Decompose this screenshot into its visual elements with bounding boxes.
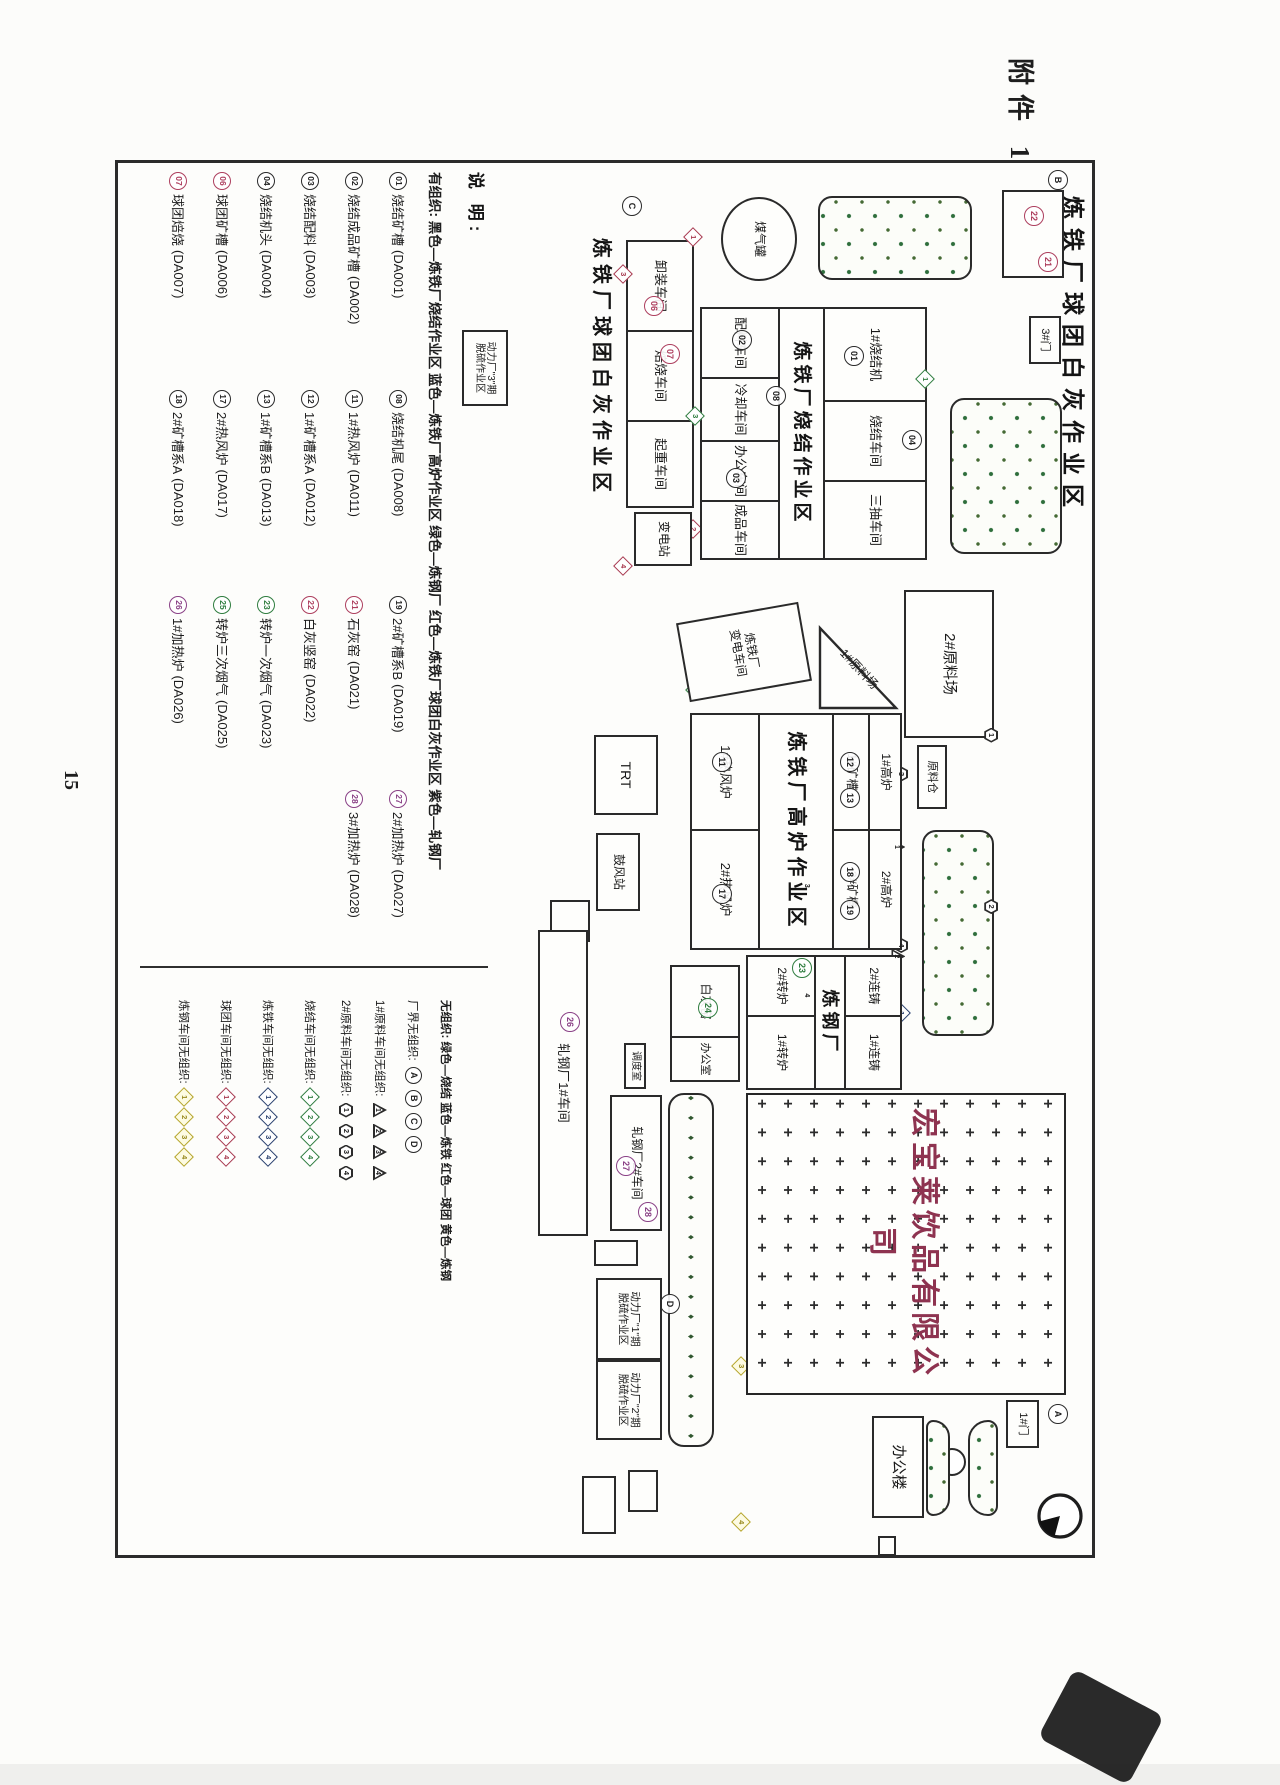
- marker-13-orebin1-B: 13: [840, 788, 860, 808]
- hot-blast-stove-1: 1#热风炉: [690, 713, 760, 831]
- unloading-workshop: 卸装车间: [626, 240, 694, 332]
- roasting-workshop: 焙烧车间: [626, 330, 694, 422]
- page-number: 15: [59, 770, 82, 790]
- attachment-label: 附件 1: [1003, 58, 1042, 168]
- legend-row-rawyard2: 2#原料车间无组织: 1 2 3 4: [338, 1000, 354, 1181]
- legend-item-DA007: 07球团焙烧(DA007): [169, 172, 188, 298]
- compass-icon: [1036, 1492, 1084, 1540]
- marker-01-sinter-bin: 01: [844, 346, 864, 366]
- marker-17-stove2: 17: [712, 884, 732, 904]
- crane-workshop: 起重车间: [626, 420, 694, 508]
- legend-item-DA003: 03烧结配料(DA003): [301, 172, 320, 298]
- power-plant-phase1-box: 动力厂"1"期 脱硫作业区: [596, 1278, 662, 1360]
- small-empty-building: [594, 1240, 638, 1266]
- boundary-point-B: B: [1048, 170, 1068, 190]
- gate-1: 1#门: [1006, 1400, 1039, 1448]
- yard2-fugitive-hexagon: 1: [984, 728, 998, 743]
- converter-1: 1#转炉: [746, 1015, 816, 1090]
- lime-office: 办公室: [670, 1036, 740, 1082]
- legend-item-DA026: 261#加热炉(DA026): [169, 596, 188, 724]
- north-compass: [1036, 1492, 1084, 1540]
- product-workshop: 成品车间: [700, 500, 780, 560]
- raw-material-yard-2: 2#原料场: [904, 590, 994, 738]
- legend-row-boundary: 厂界无组织: A B C D: [405, 1000, 422, 1153]
- legend-item-DA019: 192#矿槽系B(DA019): [389, 596, 408, 733]
- legend-item-DA022: 22白灰竖窑(DA022): [301, 596, 320, 722]
- legend-item-DA018: 182#矿槽系A(DA018): [169, 390, 188, 527]
- tiny-building: [878, 1536, 896, 1556]
- marker-03-sinter-batching: 03: [726, 468, 746, 488]
- legend-item-DA006: 06球团矿槽(DA006): [213, 172, 232, 298]
- legend-item-DA011: 111#热风炉(DA011): [345, 390, 364, 517]
- blower-station: 鼓风站: [596, 833, 640, 911]
- ore-bin-2: 2#矿槽: [832, 829, 870, 950]
- yard2-fugitive-hexagon: 2: [984, 899, 998, 914]
- marker-22-lime-shaft-kiln: 22: [1024, 206, 1044, 226]
- marker-21-lime-kiln: 21: [1038, 252, 1058, 272]
- marker-27-reheat-furnace-2: 27: [616, 1156, 636, 1176]
- legend-organized-header: 有组织: 黑色—炼铁厂烧结作业区 蓝色—炼铁厂高炉作业区 绿色—炼钢厂 红色—炼…: [426, 172, 446, 952]
- cooling-workshop: 冷却车间: [700, 377, 780, 442]
- marker-28-reheat-furnace-3: 28: [638, 1202, 658, 1222]
- trees-area-west: [818, 196, 972, 280]
- legend-title: 说 明:: [465, 172, 490, 236]
- legend-item-DA025: 25转炉三次烟气(DA025): [213, 596, 232, 748]
- marker-06-pellet-bin: 06: [644, 296, 664, 316]
- marker-12-orebin1-A: 12: [840, 752, 860, 772]
- legend-item-DA023: 23转炉一次烟气(DA023): [257, 596, 276, 748]
- beverage-company-parcel: 宏宝莱饮品有限公司: [746, 1093, 1066, 1395]
- small-building-east-2: [582, 1476, 616, 1534]
- marker-18-orebin2-A: 18: [840, 862, 860, 882]
- substation: 变电站: [634, 512, 692, 566]
- legend-divider-line: [140, 966, 488, 968]
- legend-row-rawyard1: 1#原料车间无组织: 1 2 3 4: [372, 1000, 388, 1181]
- legend-item-DA001: 01烧结矿槽(DA001): [389, 172, 408, 298]
- gate-3: 3#门: [1029, 316, 1061, 364]
- legend-item-DA021: 21石灰窑(DA021): [345, 596, 364, 709]
- legend-fugitive-header: 无组织: 绿色—烧结 蓝色—炼铁 红色—球团 黄色—炼钢: [438, 1000, 454, 1250]
- legend-row-pellet: 球团车间无组织: 1 2 3 4: [218, 1000, 234, 1164]
- legend-item-DA002: 02烧结成品矿槽(DA002): [345, 172, 364, 324]
- raw-material-yard-1: 1#原料场: [814, 622, 902, 712]
- area-title-sinter: 炼铁厂烧结作业区: [778, 307, 825, 560]
- legend-item-DA028: 283#加热炉(DA028): [345, 790, 364, 918]
- legend-item-DA013: 131#矿槽系B(DA013): [257, 390, 276, 527]
- scan-corner-artifact: [1038, 1669, 1165, 1785]
- tree-strip: [668, 1093, 714, 1447]
- boundary-point-A: A: [1048, 1404, 1068, 1424]
- gas-tank: 煤气罐: [721, 197, 797, 281]
- marker-07-pellet-roast: 07: [660, 344, 680, 364]
- marker-02-sinter-product-bin: 02: [732, 330, 752, 350]
- marker-26-reheat-furnace-1: 26: [560, 1012, 580, 1032]
- dispatch-room: 调度室: [624, 1043, 646, 1089]
- area-title-pellet-lime-mid: 炼铁厂球团白灰作业区: [589, 238, 618, 498]
- legend-row-steelmaking: 炼钢车间无组织: 1 2 3 4: [176, 1000, 192, 1164]
- marker-04-sinter-head: 04: [902, 430, 922, 450]
- sinter-machine-1: 1#烧结机: [823, 307, 927, 402]
- marker-11-stove1: 11: [712, 752, 732, 772]
- trt-station: TRT: [594, 735, 658, 815]
- power-plant-phase3-box: 动力厂"3"期 脱硫作业区: [462, 330, 508, 406]
- garden-bed-1: [968, 1420, 998, 1516]
- area-title-steel-plant: 炼钢厂: [814, 955, 846, 1090]
- beverage-company-name: 宏宝莱饮品有限公司: [864, 1095, 948, 1393]
- legend-item-DA012: 121#矿槽系A(DA012): [301, 390, 320, 527]
- trees-area-north-2: [922, 830, 994, 1036]
- boundary-point-D: D: [660, 1294, 680, 1314]
- ore-bin-1: 1#矿槽: [832, 713, 870, 831]
- main-draft-workshop: 三抽车间: [823, 480, 927, 560]
- legend-item-DA008: 08烧结机尾(DA008): [389, 390, 408, 516]
- scanned-page: { "page": { "attachment": "附件 1", "page_…: [0, 0, 1280, 1764]
- legend-row-ironmaking: 炼铁车间无组织: 1 2 3 4: [260, 1000, 276, 1164]
- marker-24-converter-secondary-gas: 24: [698, 998, 718, 1018]
- raw-material-bin: 原料仓: [917, 745, 947, 809]
- legend-row-sinter: 烧结车间无组织: 1 2 3 4: [302, 1000, 318, 1164]
- boundary-point-C: C: [622, 196, 642, 216]
- marker-23-converter-primary-gas: 23: [792, 958, 812, 978]
- legend-item-DA027: 272#加热炉(DA027): [389, 790, 408, 918]
- rotated-landscape-stage: 附件 1 15 炼铁厂球团白灰作业区 B 22 21 3#门 煤气罐 卸装车间 …: [0, 0, 1280, 1764]
- trees-area-north-1: [950, 398, 1062, 554]
- office-building: 办公楼: [872, 1416, 924, 1518]
- area-title-blast-furnace: 炼铁厂高炉作业区: [758, 713, 834, 950]
- marker-19-orebin2-B: 19: [840, 900, 860, 920]
- power-plant-phase2-box: 动力厂"2"期 脱硫作业区: [596, 1360, 662, 1440]
- caster-2: 2#连铸: [844, 955, 902, 1017]
- caster-1: 1#连铸: [844, 1015, 902, 1090]
- garden-bed-2: [926, 1420, 950, 1516]
- legend-item-DA017: 172#热风炉(DA017): [213, 390, 232, 518]
- legend-item-DA004: 04烧结机头(DA004): [257, 172, 276, 298]
- small-building-east-1: [628, 1470, 658, 1512]
- marker-08-sinter-tail: 08: [766, 386, 786, 406]
- rolling-mill-1: 轧钢厂1#车间: [538, 930, 588, 1236]
